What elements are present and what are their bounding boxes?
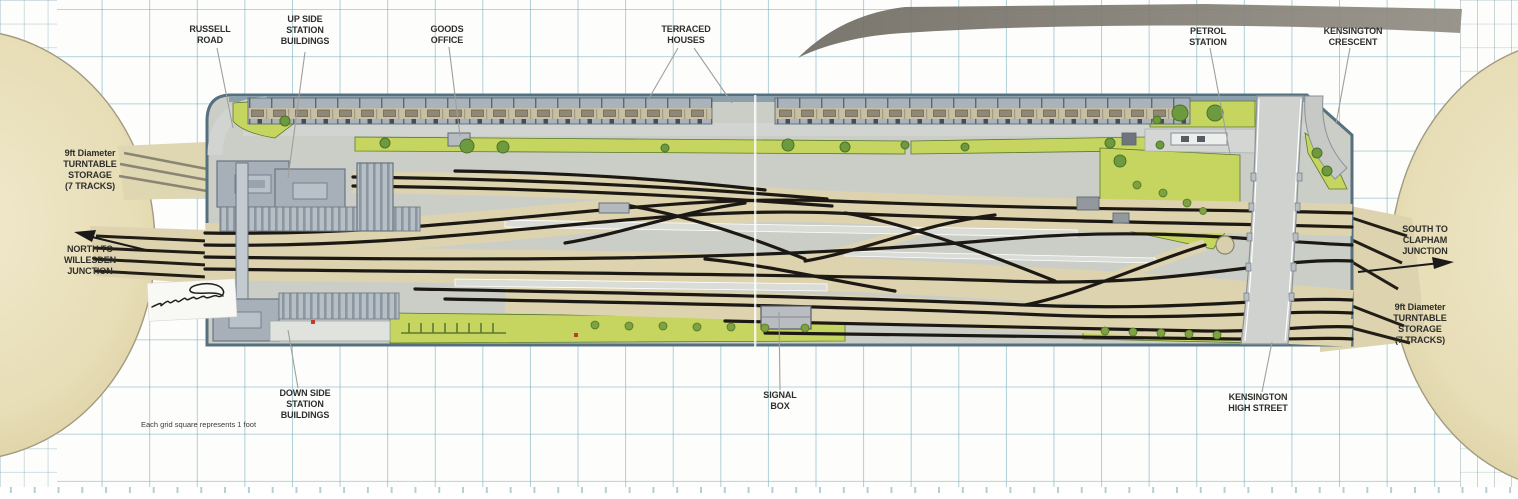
label-north-to-willesden-junction: NORTH TO WILLESDEN JUNCTION	[34, 244, 146, 277]
label-petrol-station: PETROL STATION	[1152, 26, 1264, 48]
label-kensington-crescent: KENSINGTON CRESCENT	[1297, 26, 1409, 48]
down-side-station-buildings-art	[213, 293, 399, 341]
label-south-to-clapham-junction: SOUTH TO CLAPHAM JUNCTION	[1369, 224, 1481, 257]
water-tank	[1216, 236, 1234, 254]
label-kensington-high-street: KENSINGTON HIGH STREET	[1202, 392, 1314, 414]
label-signal-box: SIGNAL BOX	[724, 390, 836, 412]
red-marker-1	[311, 320, 315, 324]
grid-scale-note: Each grid square represents 1 foot	[141, 420, 361, 429]
label-turntable-storage-left: 9ft Diameter TURNTABLE STORAGE (7 TRACKS…	[34, 148, 146, 192]
designer-signature	[147, 279, 237, 322]
page-fold-seam	[754, 95, 756, 347]
label-down-side-station-buildings: DOWN SIDE STATION BUILDINGS	[249, 388, 361, 421]
red-marker-2	[574, 333, 578, 337]
track-plan-page: RUSSELL ROAD UP SIDE STATION BUILDINGS G…	[0, 0, 1518, 499]
label-turntable-storage-right: 9ft Diameter TURNTABLE STORAGE (7 TRACKS…	[1364, 302, 1476, 346]
label-up-side-station-buildings: UP SIDE STATION BUILDINGS	[249, 14, 361, 47]
baseboard	[205, 95, 1352, 347]
label-terraced-houses: TERRACED HOUSES	[630, 24, 742, 46]
label-goods-office: GOODS OFFICE	[391, 24, 503, 46]
station-footbridge	[236, 163, 248, 303]
